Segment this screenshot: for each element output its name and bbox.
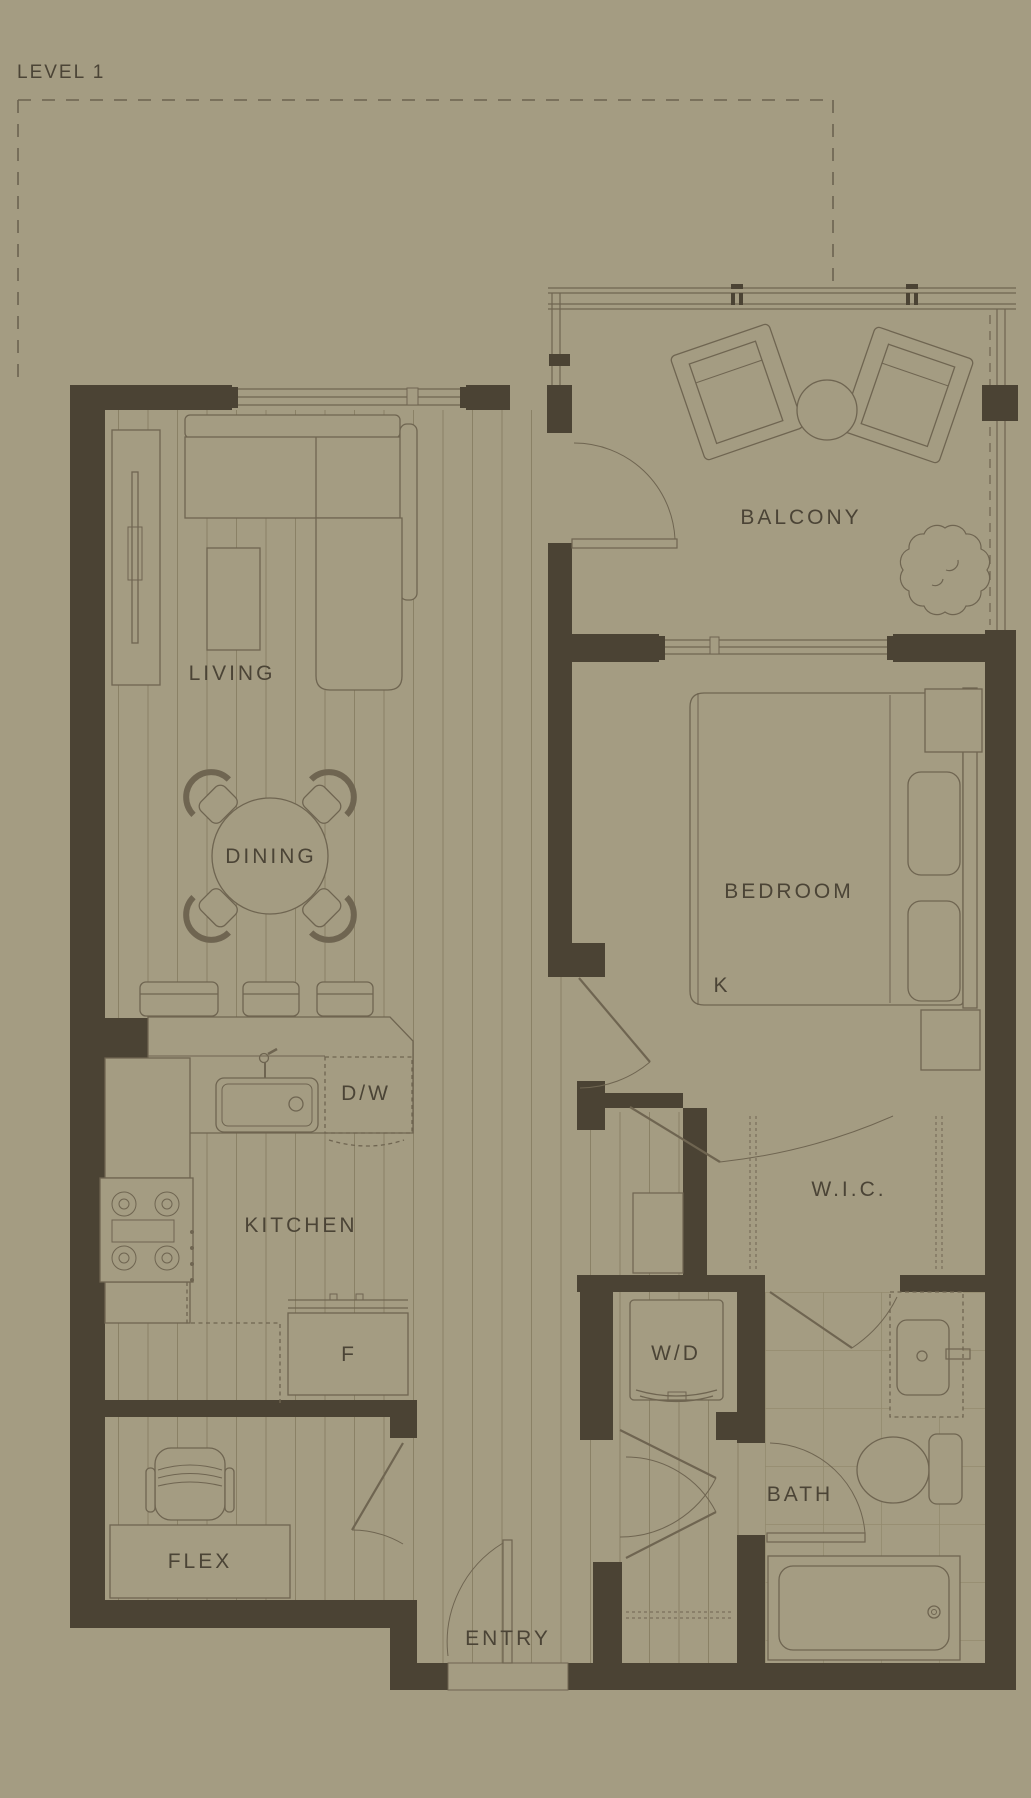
level-title: LEVEL 1 (17, 62, 105, 83)
room-label-living: LIVING (189, 662, 276, 685)
coffee-table (207, 548, 260, 650)
label-king-bed: K (713, 974, 730, 997)
office-chair (146, 1448, 234, 1520)
sofa-back (185, 415, 400, 438)
floorplan-drawing: LEVEL 1 BALCONY LIVING DINING KITCHEN BE… (0, 0, 1031, 1798)
floorplan-page: LEVEL 1 BALCONY LIVING DINING KITCHEN BE… (0, 0, 1031, 1798)
bar-stools (140, 982, 373, 1016)
living-window (232, 385, 466, 410)
label-washer-dryer: W/D (651, 1342, 701, 1365)
label-fridge: F (341, 1343, 357, 1366)
nightstand (921, 1010, 980, 1070)
room-label-bath: BATH (767, 1483, 833, 1506)
counter-left (105, 1058, 190, 1178)
room-label-bedroom: BEDROOM (724, 880, 854, 903)
toilet (857, 1434, 962, 1504)
sofa-chaise (316, 518, 402, 690)
label-dishwasher: D/W (341, 1082, 391, 1105)
hall-cabinet (633, 1193, 683, 1273)
room-label-flex: FLEX (168, 1550, 233, 1573)
side-table (797, 380, 857, 440)
tv-icon (132, 472, 138, 643)
counter-left-lower (105, 1282, 190, 1323)
pillow (908, 772, 960, 875)
range-stove (100, 1178, 194, 1282)
room-label-wic: W.I.C. (811, 1178, 886, 1201)
nightstand (925, 689, 982, 752)
bedroom-window (659, 634, 893, 662)
room-label-dining: DINING (225, 845, 317, 868)
entry-threshold (448, 1663, 568, 1690)
room-label-entry: ENTRY (465, 1627, 551, 1650)
pillow (908, 901, 960, 1001)
bathtub (768, 1556, 960, 1660)
vanity-sink (890, 1292, 970, 1417)
sofa-seat (185, 437, 402, 518)
room-label-balcony: BALCONY (740, 506, 861, 529)
room-label-kitchen: KITCHEN (244, 1214, 357, 1237)
